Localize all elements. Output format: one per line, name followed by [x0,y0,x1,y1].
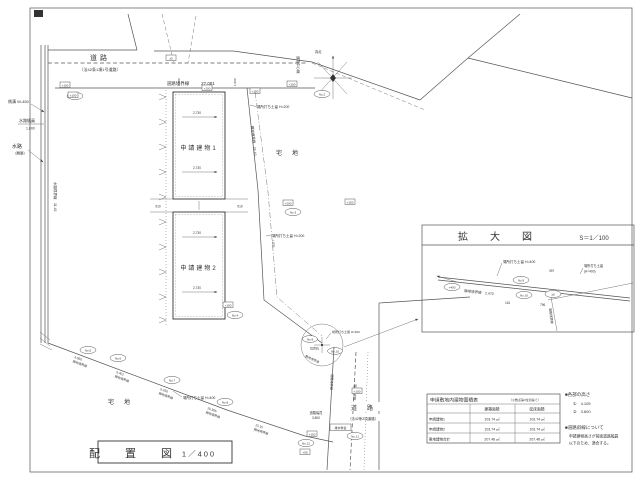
height-2: ② 3.600 [573,409,591,414]
title-box: 配 置 図 1／400 [89,441,232,463]
spot-level: +50 [302,450,307,454]
waterway-name: 水路 [12,143,22,150]
table-cell: 103.74 ㎡ [529,417,545,422]
spot-level: +200 [285,201,292,205]
enlarged-title: 拡 大 図 [458,230,538,243]
table-cell: 103.74 ㎡ [529,427,545,432]
waterway-boundary-label: 水路境界線 11.42 [53,182,58,212]
table-cell: 103.74 ㎡ [484,427,500,432]
table-note: （小数点第3位切捨て） [509,397,541,402]
table-title: 申請敷地内建物面積表 [430,397,478,404]
east-boundary: 隣地境界線 25.10 1,820 場所打ち土留 H=200 場所打ち土留 H=… [223,88,355,343]
spot-level: +200 [204,86,211,90]
table-row-label: 申請建物1 [429,417,445,422]
spot-level: ±0 [551,292,555,296]
gap-dim: 910 [237,205,243,209]
survey-point: No.9 [307,337,314,341]
retaining-wall-height: (H=400) [584,270,596,274]
road-slope-note-line2: 以下のため、適合する。 [569,441,611,446]
survey-point: No.4 [232,313,239,317]
retaining-wall-label: 場所打ち土留 H=400 [332,329,360,334]
survey-point: No.8 [222,400,229,404]
enlarged-road-boundary-label: 道路境界線 [548,308,555,325]
survey-point: No.10 [520,293,528,297]
enlarged-view: 拡 大 図 S＝1／100 隣地境界線 2.470 場所打ち土留 H=400 場… [422,225,634,332]
survey-point: No.10 [331,349,339,353]
road-slope-note-line1: 申請建物高さが前面道路幅員 [569,434,619,439]
top-road-kind: 〔法42条1項1号道路〕 [80,66,121,72]
table-row-label: 申請建物2 [429,427,445,432]
building-1-label: 申請建物1 [180,144,217,152]
retaining-wall-label: 場所打ち土留 H=200 [257,104,289,109]
survey-point: No.6 [115,356,122,360]
survey-point: No.5 [85,348,92,352]
retaining-wall-label: 場所打ち土留 [584,263,603,268]
top-road-name: 道路 [90,53,110,62]
retaining-wall-label: 場所打ち土留 H=400 [183,395,215,400]
waterway: 側溝 W-450 水路幅員 1,000 水路 （開渠） 水路境界線 11.42 [8,45,58,350]
spot-level: +100 [70,93,77,97]
retaining-wall-label: 場所打ち土留 H=200 [272,233,304,238]
spot-level: +100 [225,303,232,307]
survey-point: No.2 [319,92,326,96]
south-boundary: No.5 No.6 No.7 No.8 4.050 隣地境界線 5.401 隣地… [48,343,333,442]
waterway-width-value: 1,000 [26,127,35,131]
top-road-center-label: 道路中心線 [296,56,301,74]
parcel-label-east: 宅 地 [276,149,300,157]
enlarged-dim: 397 [549,269,555,273]
spot-level: +100 [289,82,296,86]
enlarged-boundary-label: 隣地境界線 2.470 [464,288,494,296]
area-table: 申請敷地内建物面積表 （小数点第3位切捨て） 建築面積 延床面積 申請建物1 1… [427,394,560,443]
east-boundary-dim: 1,820 [271,240,276,248]
site-plan-sheet: 真北 道路 〔法42条1項1号道路〕 道路境界線 27.081 道路中心線 No… [0,0,640,480]
survey-point: No.12 [302,441,310,445]
table-cell: 103.74 ㎡ [484,417,500,422]
south-road: 道路境界線 道路後退線 道 路 〔法42条2項道路〕 道路幅員 3,800 排水… [298,297,470,470]
building-1: 申請建物1 2,730 2,730 1,000 1,000 [173,78,237,199]
building-2-label: 申請建物2 [180,264,217,272]
manhole-label: 排水桝蓋 [334,425,346,430]
waterway-width-label: 水路幅員 [19,117,35,123]
building-2: 申請建物2 2,730 2,730 [173,212,225,319]
enlarged-dim: 796 [540,303,546,307]
south-road-boundary-label: 道路境界線 [329,374,335,391]
road-width-label: 道路幅員 [310,410,324,415]
road-width-value: 3,800 [312,416,320,420]
spot-level: +150 [309,432,316,436]
road-slope-note-title: ■道路斜線について [565,424,604,431]
spot-level: +150 [347,200,354,204]
retaining-wall-label: 場所打ち土留 H=400 [503,259,535,264]
gap-dim: 910 [155,205,161,209]
site-boundary-label: 敷地境界線 [305,353,321,364]
survey-point: No.3 [290,210,297,214]
setback-dim: 1,000 [177,78,181,86]
survey-point: No.7 [169,378,176,382]
waterway-kind: （開渠） [13,151,27,156]
table-col-building-area: 建築面積 [484,407,499,412]
height-1: ① 4.105 [573,401,591,406]
spot-level: +100 [354,389,361,393]
table-cell: 207.48 ㎡ [484,437,500,442]
north-label: 真北 [315,49,322,54]
spot-level: ±0 [169,56,173,60]
setback-dim: 1,000 [233,78,237,86]
east-boundary-label: 隣地境界線 25.10 [250,126,258,156]
top-road: 道路 〔法42条1項1号道路〕 道路境界線 27.081 道路中心線 No.1 … [48,52,330,100]
boundary-marker-label: 境界石 [310,346,319,351]
building-dim: 2,730 [193,286,201,290]
gutter-label: 側溝 W-450 [8,98,30,104]
building-dim: 2,730 [193,166,201,170]
south-road-name: 道 路 [351,404,375,412]
spot-level: +400 [449,285,456,289]
drawing-scale: 1／400 [182,450,216,459]
table-col-floor-area: 延床面積 [529,407,544,412]
building-dim: 2,730 [193,231,201,235]
table-row-label: 敷地建物合計 [429,437,450,442]
detail-circle: No.9 No.10 場所打ち土留 H=400 境界石 敷地境界線 [301,319,418,366]
heights-note-title: ■各部の高さ [565,391,590,398]
building-dim: 2,730 [193,111,201,115]
table-cell: 207.48 ㎡ [529,437,545,442]
enlarged-scale: S＝1／100 [579,235,609,242]
drawing-title: 配 置 図 [89,447,179,460]
spot-level: +150 [62,83,69,87]
parcel-label-south: 宅 地 [108,398,132,406]
enlarged-dim: 161 [505,301,511,305]
context-lines [48,14,632,110]
notes: ■各部の高さ ① 4.105 ② 3.600 ■道路斜線について 申請建物高さが… [565,391,619,446]
south-road-kind: 〔法42条2項道路〕 [348,416,378,421]
survey-point: No.9 [518,278,525,282]
drawing-canvas: 真北 道路 〔法42条1項1号道路〕 道路境界線 27.081 道路中心線 No… [0,0,640,480]
survey-point: No.11 [351,434,359,438]
building-gap-dims: 910 910 [150,199,248,212]
